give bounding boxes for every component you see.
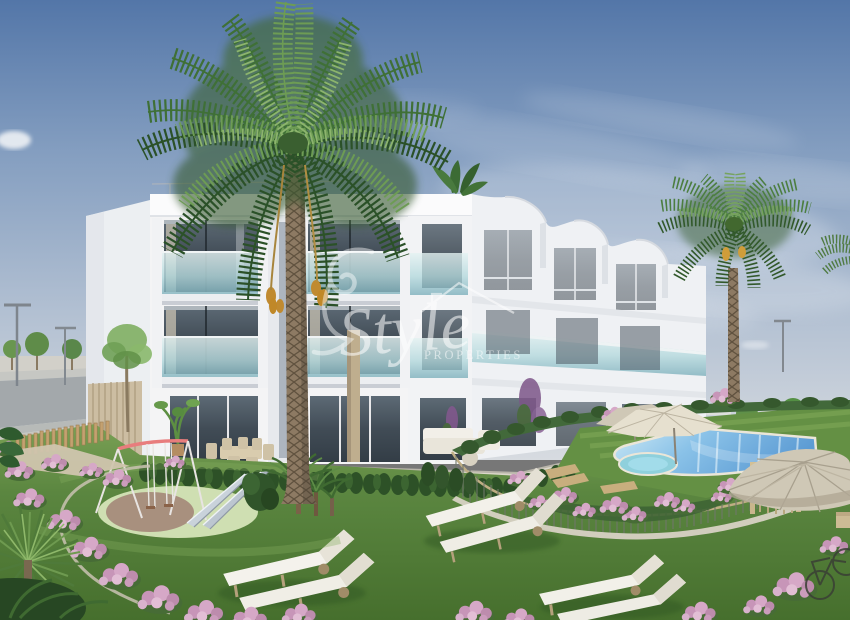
svg-text:PROPERTIES: PROPERTIES	[424, 348, 523, 362]
